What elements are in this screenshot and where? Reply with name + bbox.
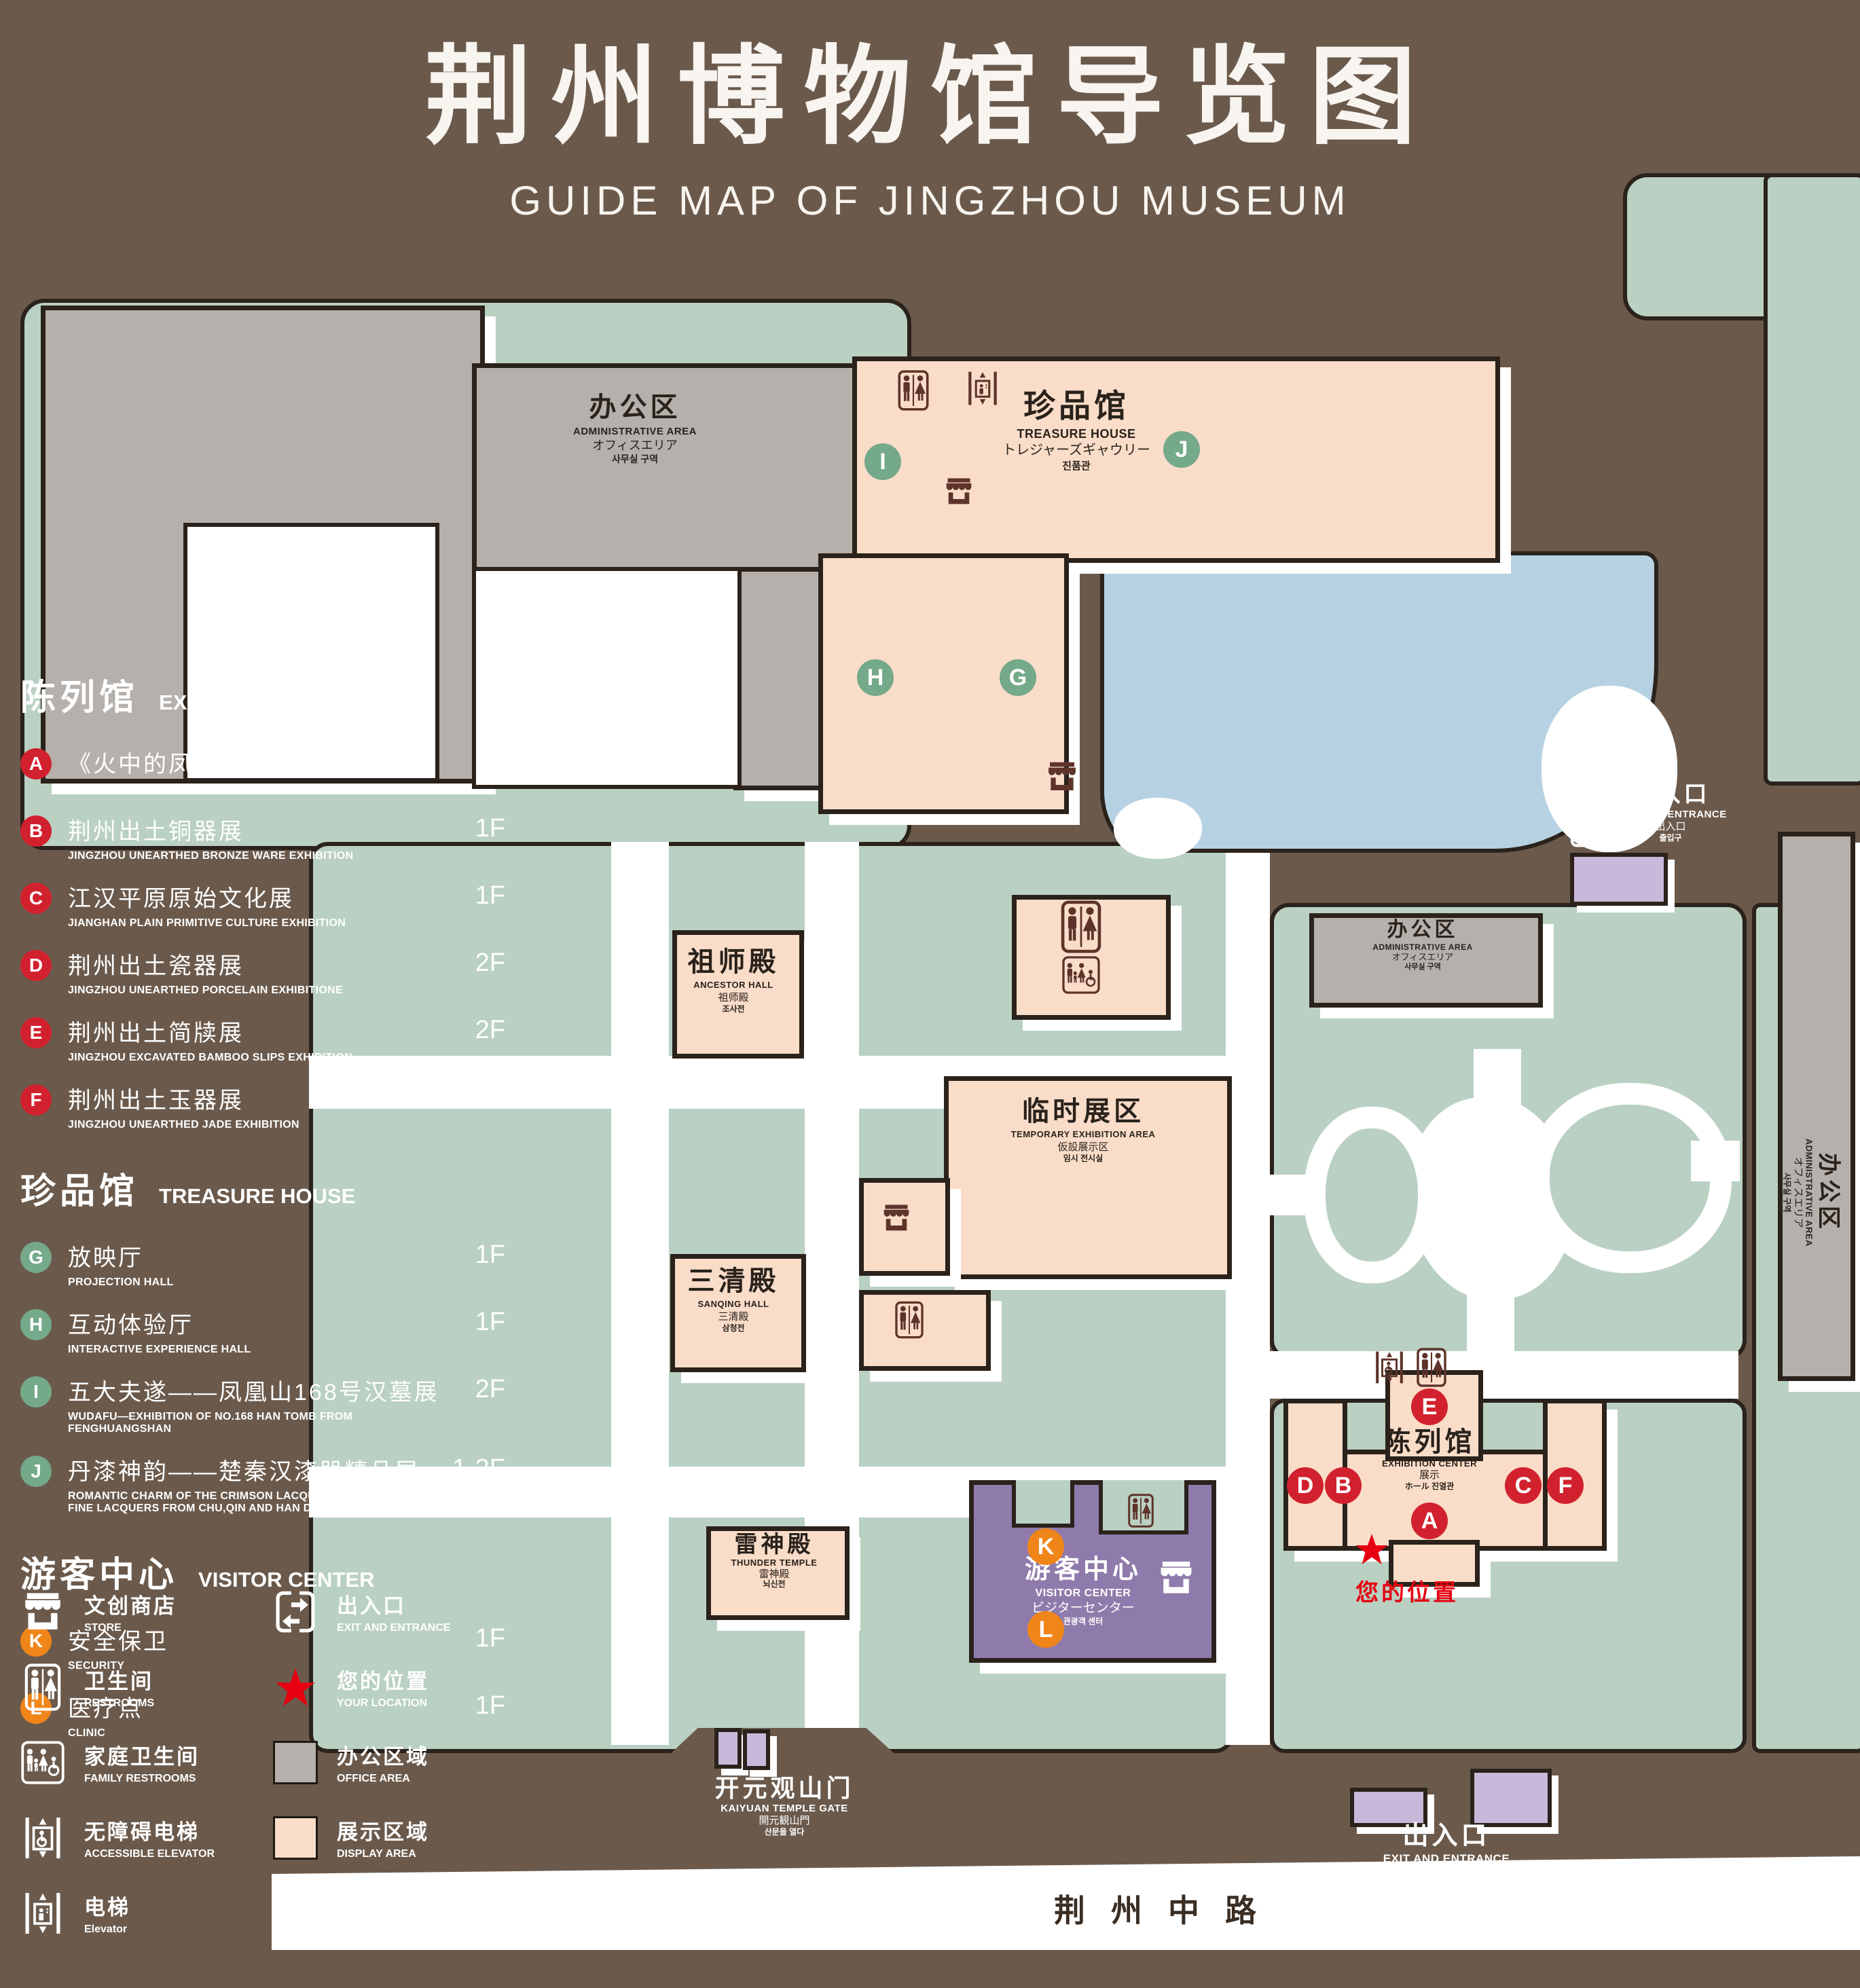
your-location-star-icon: [1355, 1533, 1389, 1565]
ancestor-hall-label: 祖师殿 ANCESTOR HALL 祖师殿 조사전: [625, 945, 842, 1014]
admin-area-label: 办公区 ADMINISTRATIVE AREA オフィスエリア 사무실 구역: [506, 390, 764, 466]
map-marker-k: K: [1027, 1528, 1064, 1565]
east-exit-label: 出入口 EXIT AND ENTRANCE 出入口 출입구: [1562, 781, 1779, 843]
garden-path-east: [1691, 1141, 1740, 1181]
map-marker-e: E: [1411, 1388, 1448, 1425]
restroom-icon: [1416, 1348, 1447, 1387]
accessible-elevator-icon: [20, 1816, 65, 1860]
legend-family-restrooms: 家庭卫生间 FAMILY RESTROOMS: [20, 1739, 273, 1785]
garden-island-west: [1326, 1128, 1418, 1262]
garden-path-west: [1270, 1175, 1317, 1215]
map-marker-i: I: [864, 443, 901, 480]
office-area-swatch: [273, 1740, 318, 1785]
store-icon: [1158, 1559, 1195, 1597]
page-title: 荆州博物馆导览图 GUIDE MAP OF JINGZHOU MUSEUM: [0, 10, 1860, 224]
accessible-elevator-icon: [1375, 1348, 1404, 1386]
legend-exit: 出入口 EXIT AND ENTRANCE: [273, 1589, 526, 1634]
restroom-icon: [1059, 900, 1103, 953]
legend-item-h: H 互动体验厅 INTERACTIVE EXPERIENCE HALL 1F: [20, 1306, 523, 1356]
legend-item-d: D 荆州出土瓷器展 JINGZHOU UNEARTHED PORCELAIN E…: [20, 947, 523, 997]
legend-section-treasure-house: 珍品馆 TREASURE HOUSE: [20, 1162, 523, 1213]
thunder-temple-label: 雷神殿 THUNDER TEMPLE 雷神殿 뇌신전: [669, 1532, 879, 1589]
legend-accessible-elevator: 无障碍电梯 ACCESSIBLE ELEVATOR: [20, 1815, 273, 1860]
map-marker-g: G: [1000, 659, 1036, 696]
grounds-right-strip-upper: [1764, 173, 1860, 786]
store-icon: [1046, 759, 1078, 794]
store-icon: [881, 1200, 911, 1236]
garden-path-north: [1474, 1049, 1521, 1110]
restroom-icon: [895, 1300, 924, 1340]
kaiyuan-gate-west: [714, 1728, 742, 1769]
map-marker-j: J: [1163, 431, 1200, 468]
legend-item-b: B 荆州出土铜器展 JINGZHOU UNEARTHED BRONZE WARE…: [20, 813, 523, 862]
visitor-center-notch-1: [1012, 1480, 1074, 1528]
restroom-icon: [20, 1665, 65, 1710]
east-gate-building: [1570, 853, 1668, 906]
display-area-swatch: [273, 1816, 318, 1860]
path-restroom-room: [859, 1290, 991, 1371]
title-chinese: 荆州博物馆导览图: [0, 10, 1860, 165]
legend-store: 文创商店 STORE: [20, 1589, 273, 1634]
elevator-icon: [968, 369, 998, 408]
symbol-legend: 文创商店 STORE 出入口 EXIT AND ENTRANCE 卫生间 RES…: [20, 1589, 526, 1936]
title-english: GUIDE MAP OF JINGZHOU MUSEUM: [0, 177, 1860, 224]
map-marker-l: L: [1027, 1611, 1064, 1648]
map-marker-h: H: [857, 659, 894, 696]
garden-path-south: [1467, 1276, 1514, 1351]
legend-restrooms: 卫生间 RESTROOMS: [20, 1664, 273, 1710]
legend-item-e: E 荆州出土简牍展 JINGZHOU EXCAVATED BAMBOO SLIP…: [20, 1014, 523, 1064]
map-marker-d: D: [1287, 1467, 1324, 1504]
pond-inlet-west: [1114, 798, 1202, 859]
kaiyuan-gate-label: 开元观山门 KAIYUAN TEMPLE GATE 開元観山門 산문을 열다: [652, 1773, 917, 1837]
map-marker-b: B: [1325, 1467, 1362, 1504]
south-exit-label: 出入口 EXIT AND ENTRANCE 出入口 출입구: [1324, 1821, 1569, 1888]
restroom-icon: [898, 370, 929, 411]
legend-your-location: 您的位置 YOUR LOCATION: [273, 1664, 526, 1710]
family-restroom-icon: [20, 1740, 65, 1785]
legend-item-j: J 丹漆神韵——楚秦汉漆器精品展 ROMANTIC CHARM OF THE C…: [20, 1453, 523, 1515]
walkway-vertical-east: [1226, 842, 1270, 1745]
legend-section-exhibition-center: 陈列馆 EXHIBITION CENTER: [20, 669, 523, 720]
legend-item-c: C 江汉平原原始文化展 JIANGHAN PLAIN PRIMITIVE CUL…: [20, 880, 523, 929]
exit-icon: [273, 1589, 318, 1634]
south-gate-building-east: [1470, 1769, 1552, 1827]
admin-right-center-label: 办公区 ADMINISTRATIVE AREA オフィスエリア 사무실 구역: [1311, 918, 1535, 972]
family-restroom-icon: [1062, 956, 1100, 994]
legend-item-f: F 荆州出土玉器展 JINGZHOU UNEARTHED JADE EXHIBI…: [20, 1082, 523, 1131]
legend-elevator: 电梯 Elevator: [20, 1890, 273, 1936]
legend-item-a: A 《火中的凤凰》壁画 THE PHOENIX IN FIRE "MURAL P…: [20, 745, 523, 795]
restroom-icon: [1127, 1494, 1154, 1528]
walkway-horizontal-3: [1270, 1351, 1738, 1399]
sanqing-hall-label: 三清殿 SANQING HALL 三清殿 삼청전: [625, 1264, 842, 1333]
map-marker-a: A: [1411, 1503, 1448, 1539]
map-marker-c: C: [1505, 1467, 1542, 1504]
legend-office-area: 办公区域 OFFICE AREA: [273, 1739, 526, 1785]
your-location-text: 您的位置: [1332, 1574, 1482, 1607]
location-star-icon: [273, 1665, 318, 1710]
garden-island-east: [1550, 1105, 1710, 1251]
map-marker-f: F: [1547, 1467, 1584, 1504]
store-icon: [944, 475, 974, 508]
legend-display-area: 展示区域 DISPLAY AREA: [273, 1815, 526, 1860]
elevator-icon: [20, 1891, 65, 1936]
admin-right-strip-label: 办公区 ADMINISTRATIVE AREA オフィスエリア 사무실 구역: [1782, 1056, 1842, 1328]
road-label: 荆州中路: [951, 1886, 1385, 1931]
legend-item-i: I 五大夫遂——凤凰山168号汉墓展 WUDAFU—EXHIBITION OF …: [20, 1374, 523, 1435]
kaiyuan-gate-east: [743, 1729, 770, 1770]
store-icon: [20, 1589, 65, 1634]
temporary-exhibition-label: 临时展区 TEMPORARY EXHIBITION AREA 仮設展示区 임시 …: [951, 1094, 1216, 1164]
legend-item-g: G 放映厅 PROJECTION HALL 1F: [20, 1239, 523, 1289]
